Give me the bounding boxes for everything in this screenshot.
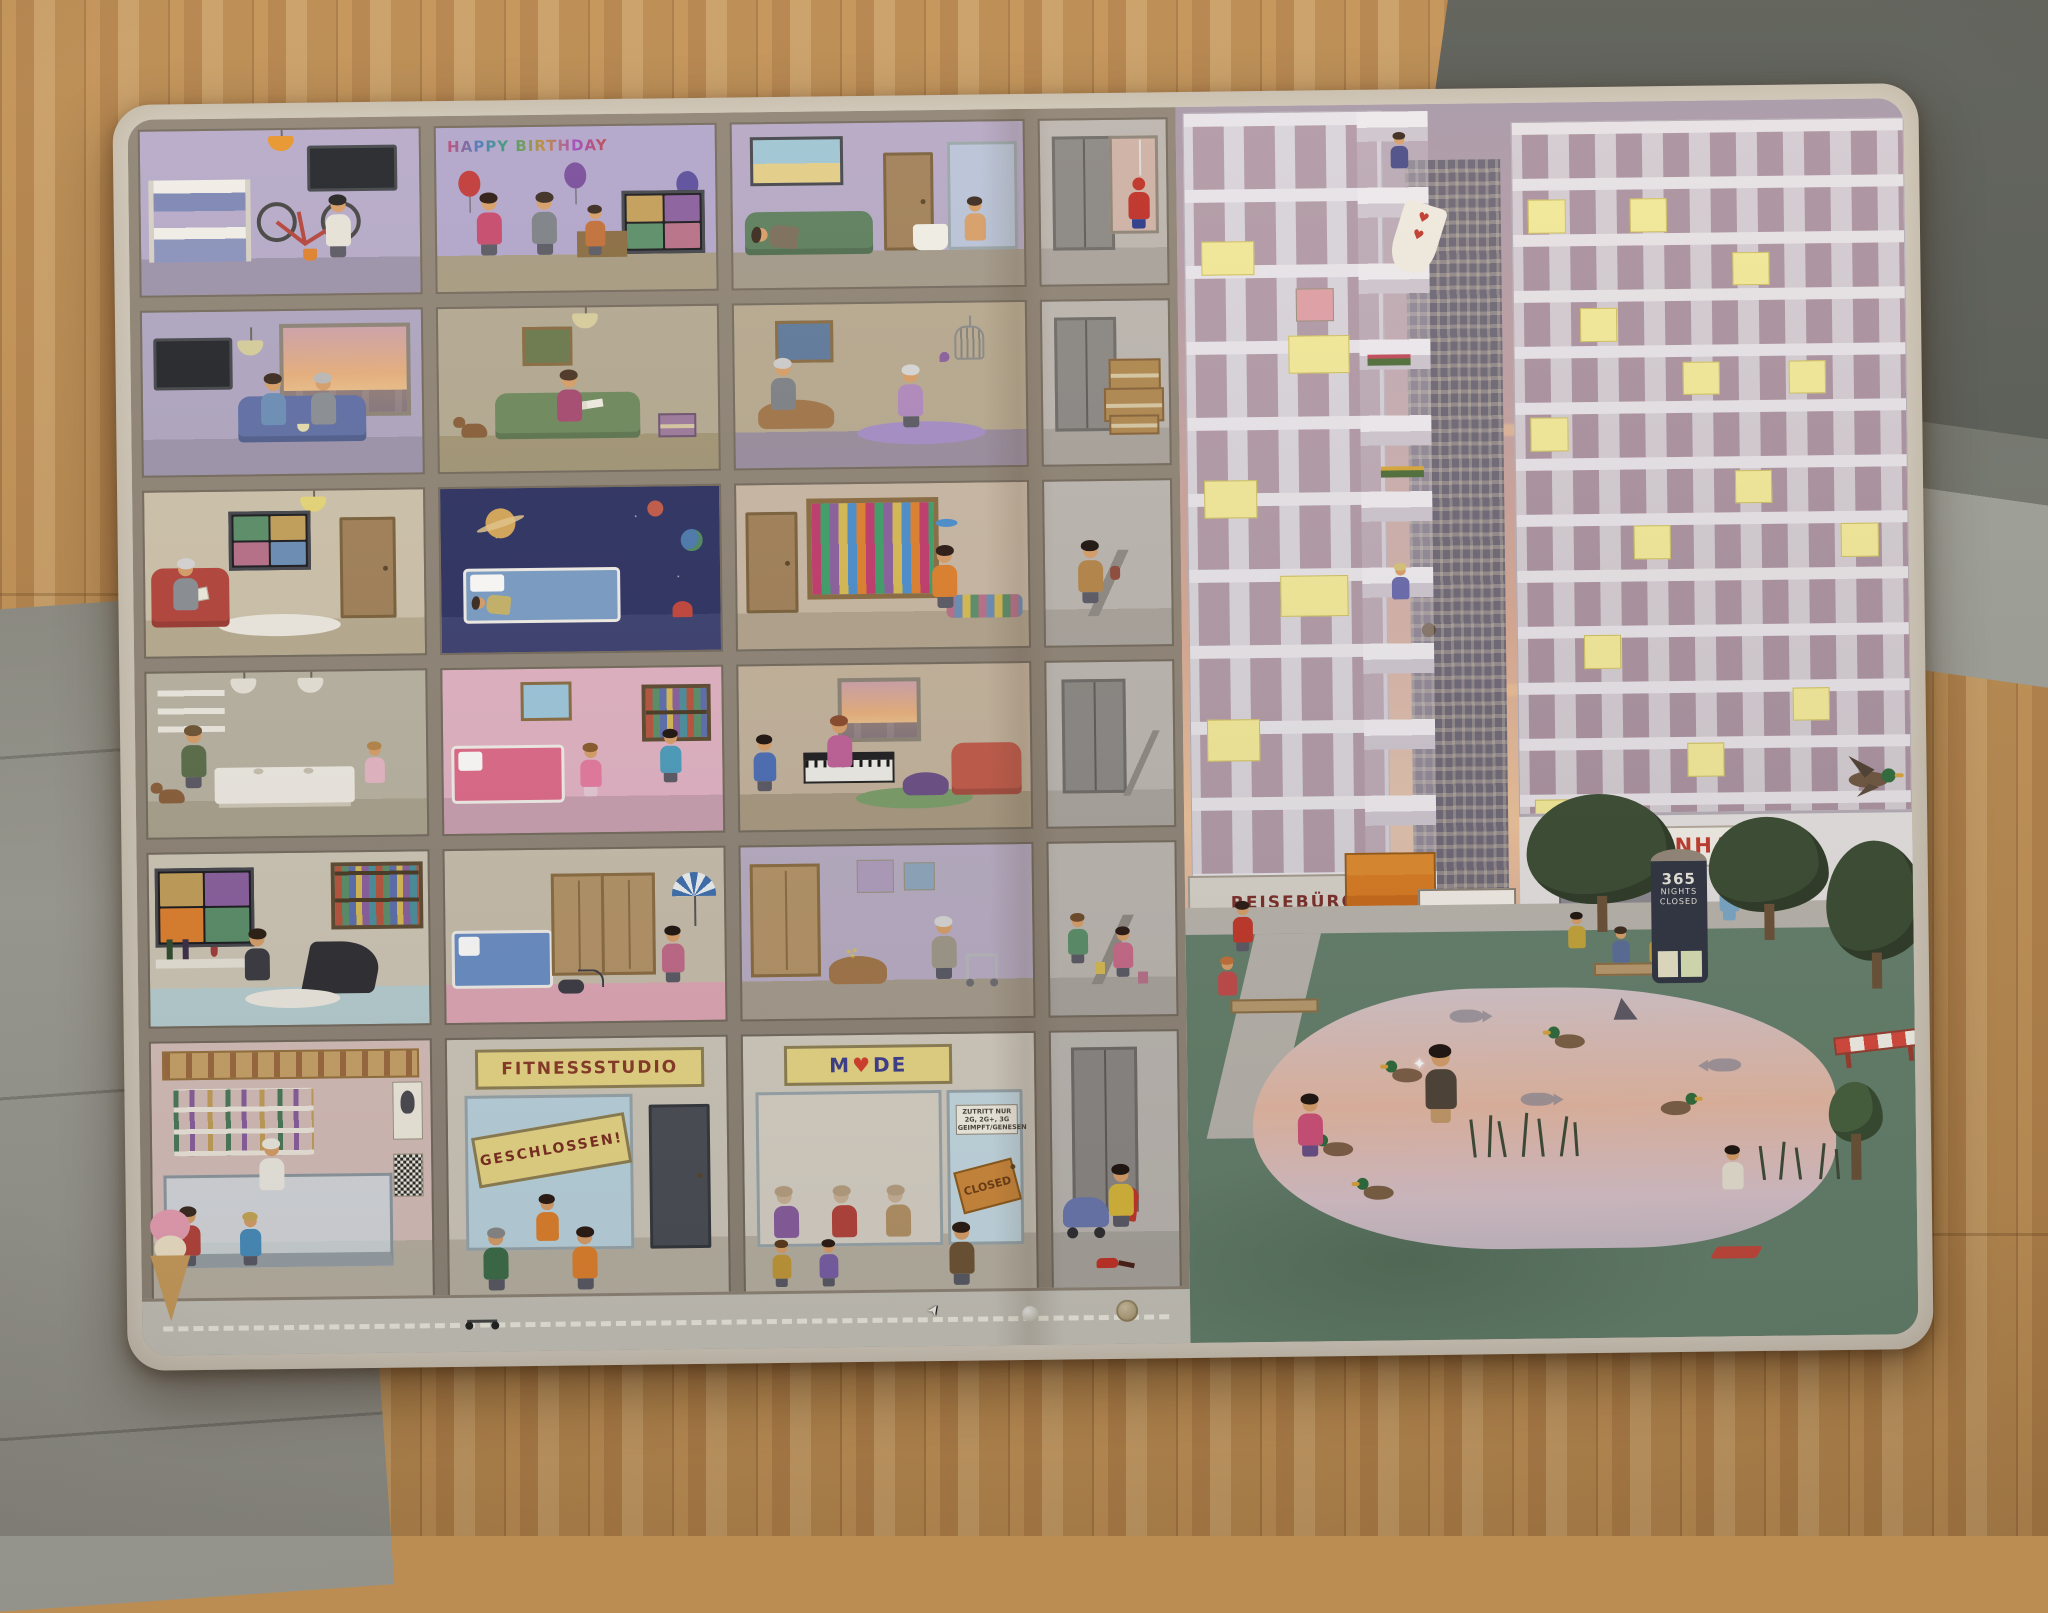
- open-wardrobe-colorful-clothes: [806, 497, 939, 600]
- disappointed-man-outside: [483, 1230, 510, 1290]
- geschlossen-text: GESCHLOSSEN!: [479, 1130, 624, 1170]
- orange-bucket: [303, 249, 317, 261]
- building-room-grid: HAPPY BIRTHDAY: [138, 117, 1182, 1301]
- armoire: [750, 864, 821, 978]
- notice-line-3: GEIMPFT/GENESEN: [958, 1123, 1027, 1132]
- stair-railing: [1055, 550, 1162, 617]
- dog-begging: [159, 789, 185, 803]
- grandmother-with-walker: [930, 919, 957, 979]
- dog: [462, 424, 488, 438]
- kick-scooter: [467, 1319, 497, 1322]
- bookshelf: [330, 862, 423, 930]
- column-body: 365 NIGHTS CLOSED: [1651, 860, 1708, 983]
- man-in-office-chair: [244, 931, 271, 980]
- book-pile: [659, 413, 697, 437]
- room-space-kids-bedroom: [438, 484, 723, 655]
- mannequin-tan-coat: [885, 1187, 906, 1236]
- big-screen-video-party: [154, 867, 254, 947]
- lit-window: [1792, 687, 1830, 721]
- picture-book-spread: HAPPY BIRTHDAY: [112, 83, 1933, 1371]
- yoga-mat: [1710, 1246, 1763, 1259]
- woman-walking-downstairs: [1077, 543, 1104, 603]
- black-lounge-chair: [301, 941, 384, 994]
- blue-bed: [451, 930, 553, 989]
- bakery-menu-strip: [162, 1048, 419, 1081]
- fitnessstudio-sign: FITNESSSTUDIO: [475, 1047, 705, 1089]
- elevator-doors: [1052, 136, 1115, 251]
- pendant-lamp-icon: [572, 313, 598, 328]
- mallard-duck: [1323, 1142, 1353, 1156]
- room-vanity-cleaning: [443, 846, 728, 1026]
- fish-shadow: [1707, 1059, 1741, 1072]
- wine-bottle-icon: [183, 939, 189, 959]
- girl-ballet-dancing: [579, 745, 602, 796]
- room-armchair-newspaper: [142, 488, 427, 659]
- ad-line-closed: CLOSED: [1660, 897, 1698, 907]
- kid-outside-left: [772, 1242, 792, 1287]
- apartment-building-cross-section: HAPPY BIRTHDAY: [128, 107, 1191, 1356]
- shop-mode-fashion: M♥DE ZUTRITT NUR 2G, 2G+, 3G GEIMPFT/GEN: [741, 1031, 1039, 1295]
- wine-glass-icon: [211, 947, 218, 957]
- advertising-column: 365 NIGHTS CLOSED: [1650, 848, 1708, 983]
- lit-window: [1280, 575, 1349, 618]
- closed-hanging-sign: CLOSED: [953, 1157, 1022, 1213]
- young-tree: [1828, 1082, 1883, 1181]
- geschlossen-banner: GESCHLOSSEN!: [471, 1112, 632, 1188]
- plate-icon: [253, 768, 263, 774]
- balloon-icon: [459, 170, 481, 196]
- room-nap-and-bathroom: [730, 119, 1026, 290]
- lit-window: [1634, 526, 1672, 560]
- balloon-icon: [565, 162, 587, 188]
- floor-lamp-icon: [237, 340, 263, 355]
- lit-window: [1687, 743, 1725, 777]
- fitnessstudio-sign-text: FITNESSSTUDIO: [501, 1057, 678, 1079]
- bottle-shelves: [174, 1088, 314, 1156]
- stairwell-moving-boxes: [1039, 298, 1171, 467]
- mushroom-lamp: [673, 601, 693, 617]
- parrot: [940, 352, 950, 362]
- person-repairing-bicycle: [325, 197, 352, 257]
- lit-window: [1201, 241, 1255, 276]
- room-pink-kids: [440, 665, 725, 836]
- shower-stall: [947, 141, 1018, 249]
- balcony-flower-box: [1367, 359, 1410, 367]
- blue-sofa: [238, 395, 367, 442]
- shopping-bag-icon: [1138, 972, 1148, 984]
- lit-window: [1788, 360, 1826, 394]
- fish-shadow: [1521, 1092, 1555, 1105]
- room-bike-repair-bedroom: [138, 126, 423, 297]
- room-wardrobe-sorting: [734, 480, 1030, 651]
- park-tree: [1708, 816, 1829, 940]
- spiderman-climbing: [1127, 178, 1150, 229]
- sidewalk: ➤: [142, 1286, 1190, 1356]
- woman-sorting-laundry: [932, 548, 959, 608]
- moving-box: [1109, 414, 1159, 435]
- person-on-top-balcony: [1390, 134, 1409, 169]
- lit-window: [1841, 523, 1879, 557]
- boy-buying-icecream: [239, 1214, 262, 1265]
- heart-icon: ♥: [1410, 227, 1426, 245]
- mallard-duck: [1555, 1034, 1585, 1048]
- child-dancing: [584, 207, 605, 255]
- woman-red-cape-stroller: [1108, 1166, 1135, 1226]
- toilet: [913, 223, 948, 250]
- saturn-planet: [485, 508, 515, 538]
- room-grandparents-parrot: [732, 300, 1028, 471]
- earth-planet: [681, 529, 703, 551]
- portrait-frame: [903, 862, 934, 890]
- woman-playing-keyboard: [826, 718, 853, 767]
- man-reading-newspaper: [173, 561, 200, 610]
- fish-shadow: [1450, 1009, 1484, 1022]
- pendant-lamp-icon: [297, 678, 323, 693]
- mallard-duck: [1392, 1068, 1422, 1082]
- tv-on-stand: [153, 338, 232, 391]
- backpack: [1110, 565, 1120, 579]
- frisbee-icon: [935, 519, 957, 527]
- tv-video-call: [622, 190, 705, 253]
- man-photographing-pond: [1424, 1047, 1457, 1122]
- grandmother-dancing: [897, 367, 924, 427]
- vacuum-cleaner: [558, 980, 584, 994]
- room-granny-rollator: [739, 842, 1036, 1022]
- room-birthday-party: HAPPY BIRTHDAY: [434, 123, 719, 294]
- pedestrian-red-coat: [1231, 903, 1252, 951]
- heart-icon: ♥: [1416, 210, 1432, 228]
- stairwell-empty: [1044, 659, 1176, 828]
- room-video-party-wine: [146, 849, 431, 1029]
- red-planet: [648, 500, 664, 516]
- fitness-door: [648, 1103, 712, 1248]
- column-cap: [1650, 848, 1706, 861]
- room-music-keyboard: [736, 661, 1032, 832]
- lit-window: [1580, 308, 1618, 342]
- park-grass: ✦: [1185, 926, 1918, 1343]
- qr-code-poster: [393, 1153, 423, 1196]
- woman-at-agency-window: [1217, 959, 1237, 996]
- mannequin-purple-coat: [774, 1189, 795, 1238]
- reeds-cluster: [1464, 1110, 1585, 1157]
- kid-lowering-toy-from-balcony: [1391, 565, 1410, 600]
- mode-de: DE: [873, 1052, 908, 1076]
- stair-railing: [1112, 730, 1171, 796]
- bunk-bed: [149, 180, 252, 263]
- duck-on-grass: [1363, 1186, 1393, 1200]
- flower-table: [829, 956, 887, 984]
- mallard-duck: [1661, 1101, 1691, 1115]
- mode-m: M: [829, 1053, 851, 1077]
- parking-dashes: [163, 1314, 1169, 1331]
- ad-line-nights: NIGHTS: [1661, 887, 1698, 897]
- book-pages: HAPPY BIRTHDAY: [128, 98, 1919, 1356]
- girl-feeding-ducks: [1297, 1097, 1324, 1157]
- wardrobe-cabinet: [601, 873, 656, 976]
- boy-jumping-phone: [659, 731, 682, 782]
- woman-at-vanity: [661, 928, 685, 982]
- flying-mallard-duck: [1834, 753, 1905, 798]
- portrait-frame: [857, 859, 894, 892]
- red-whistle-on-floor: [1096, 1257, 1118, 1267]
- baby-stroller: [1062, 1197, 1108, 1228]
- white-rug: [218, 614, 341, 637]
- apartment-door: [745, 512, 799, 614]
- balcony-flower-box: [1381, 470, 1424, 478]
- woman-doing-yoga: [1722, 1148, 1745, 1190]
- lit-window: [1531, 418, 1569, 452]
- lit-window: [1732, 252, 1770, 286]
- lobby-stroller-cape-woman: [1048, 1029, 1181, 1291]
- shopping-bag-icon: [1095, 962, 1105, 974]
- person-dancing-pink: [476, 195, 503, 255]
- beach-umbrella-icon: [672, 872, 716, 897]
- shark-fin: [1613, 997, 1637, 1019]
- person-dancing-gray: [531, 194, 558, 254]
- grandfather-at-table: [770, 360, 797, 409]
- pendant-lamp-icon: [230, 679, 256, 694]
- wine-bottle-icon: [166, 939, 172, 959]
- person-on-sofa-right: [310, 376, 337, 425]
- room-dining-family: [144, 668, 429, 839]
- wardrobe-cabinet: [551, 873, 606, 976]
- striped-road-barrier: [1833, 1028, 1918, 1056]
- man-brown-coat-outside: [949, 1225, 976, 1285]
- lit-window: [1630, 198, 1668, 232]
- apartment-tower-left: [1183, 111, 1391, 913]
- covid-entry-notice: ZUTRITT NUR 2G, 2G+, 3G GEIMPFT/GENESEN: [955, 1104, 1018, 1135]
- happy-birthday-banner: HAPPY BIRTHDAY: [447, 136, 608, 156]
- mode-sign: M♥DE: [784, 1044, 953, 1085]
- lit-window: [1735, 470, 1773, 504]
- father-serving-food: [180, 728, 207, 788]
- kid-with-bag-pink: [1112, 929, 1133, 977]
- person-on-sofa-left: [260, 376, 287, 425]
- giant-icecream-cone-display: [147, 1209, 194, 1322]
- heart-icon: ♥: [852, 1053, 872, 1077]
- wanted-poster: [392, 1081, 423, 1140]
- dining-table: [214, 766, 354, 804]
- tv-beach-scene: [749, 136, 843, 186]
- pink-window-poster: [1296, 288, 1334, 322]
- red-armchair: [951, 742, 1021, 795]
- sunflowers-icon: [843, 946, 859, 960]
- plate-icon: [304, 767, 314, 773]
- room-sunset-tv-couple: [140, 307, 425, 478]
- pink-bed: [452, 745, 565, 805]
- column-posters: [1658, 950, 1702, 977]
- lit-window: [1204, 480, 1258, 519]
- mode-shop-window: [755, 1090, 943, 1247]
- woman-reading-book: [556, 373, 583, 422]
- wall-picture: [522, 327, 573, 366]
- lit-window: [1289, 335, 1350, 374]
- bird-cage: [954, 325, 984, 359]
- park-bench: [1230, 999, 1318, 1014]
- child-sleeping: [473, 593, 511, 616]
- white-round-rug: [245, 988, 340, 1008]
- shop-fitness-studio: FITNESSSTUDIO GESCHLOSSEN!: [445, 1035, 731, 1298]
- tv-video-call: [228, 511, 311, 571]
- lit-window: [1584, 635, 1622, 669]
- ad-line-365: 365: [1661, 871, 1696, 887]
- stairwell-kids-shopping: [1046, 840, 1178, 1018]
- horse-picture: [521, 682, 572, 721]
- kid-with-bag-green: [1067, 916, 1088, 964]
- evening-city-park-scene: ♥ ♥: [1175, 98, 1918, 1343]
- room-reading-woman: [436, 303, 721, 474]
- woman-drinking-inside: [535, 1196, 559, 1240]
- wall-tv: [307, 145, 397, 191]
- stairwell-spiderman: [1037, 117, 1169, 286]
- lit-window: [1207, 719, 1261, 762]
- rollator-walker: [966, 953, 998, 978]
- apartment-door: [339, 517, 396, 619]
- lit-window: [1683, 361, 1721, 395]
- closed-tag-text: CLOSED: [963, 1173, 1013, 1198]
- person-showering: [964, 198, 987, 240]
- vendor-with-hat: [258, 1142, 285, 1191]
- girl-singing-tablet: [752, 737, 776, 791]
- mannequin-red-coat: [831, 1188, 852, 1237]
- woman-with-coffee-outside: [572, 1229, 599, 1289]
- ceiling-lamp-icon: [268, 136, 294, 151]
- spider-web-line: [1138, 139, 1140, 175]
- fitness-window: GESCHLOSSEN!: [464, 1094, 634, 1250]
- stairwell-jogger: [1042, 479, 1174, 648]
- person-sleeping: [753, 223, 799, 250]
- person-on-bench: [1612, 928, 1631, 963]
- kid-outside-right: [818, 1241, 838, 1286]
- park-tree: [1825, 840, 1918, 989]
- lit-window: [1528, 200, 1566, 234]
- round-side-table: [902, 772, 949, 795]
- girl-at-table: [364, 743, 385, 782]
